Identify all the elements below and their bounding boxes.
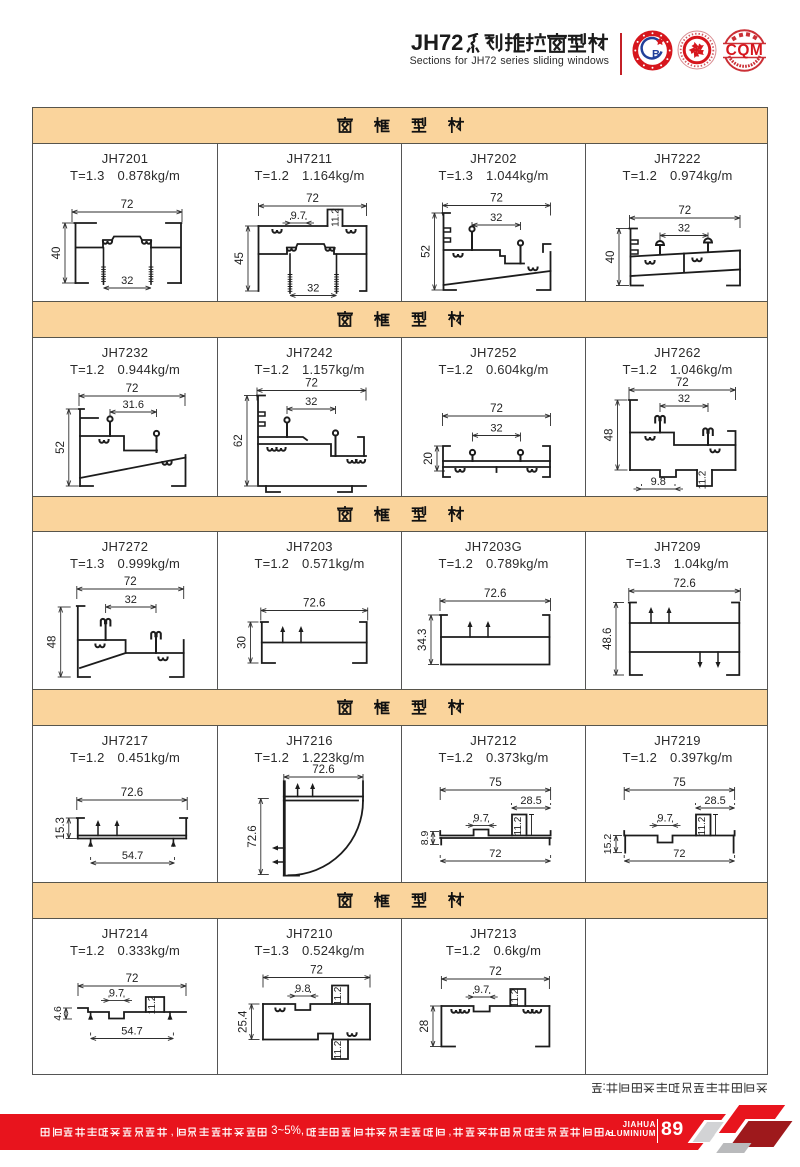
svg-text:B: B [652,49,660,61]
svg-text:CQM: CQM [726,42,764,59]
